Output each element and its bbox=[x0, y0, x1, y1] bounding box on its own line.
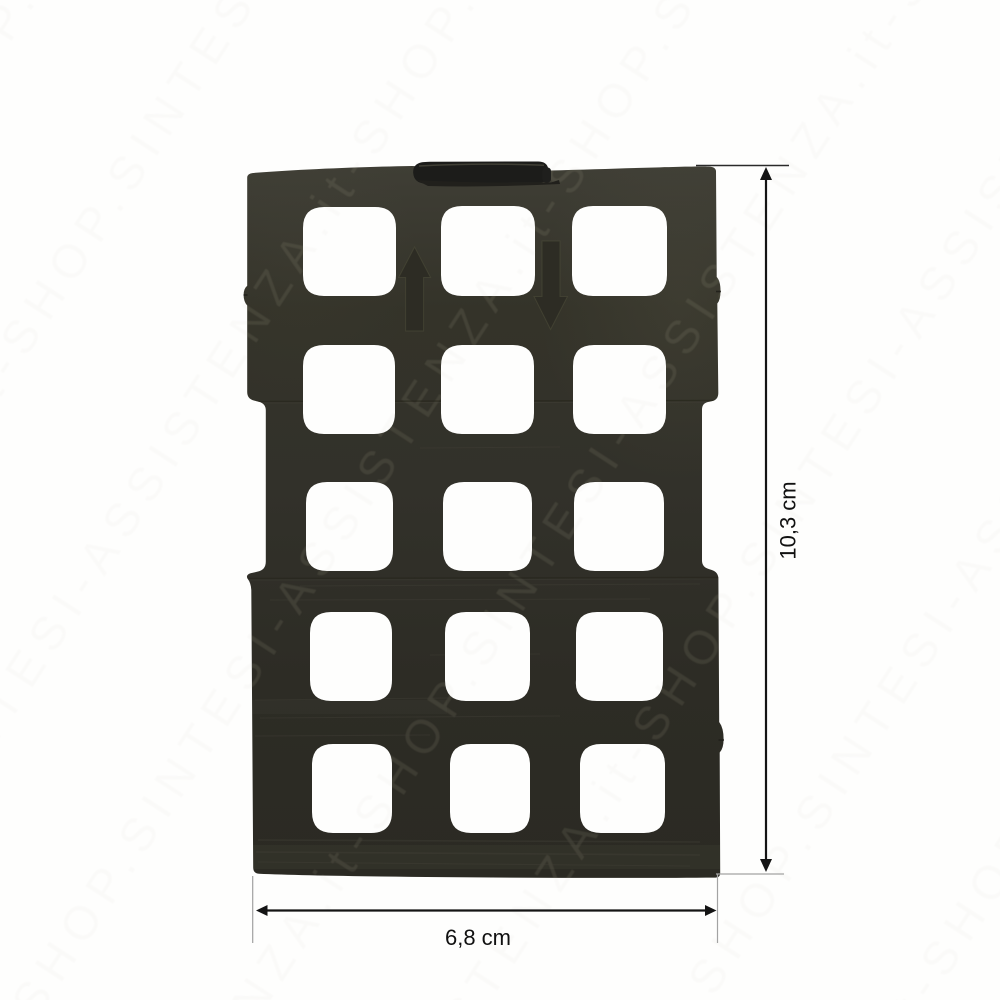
svg-text:6,8 cm: 6,8 cm bbox=[445, 925, 511, 950]
svg-text:10,3 cm: 10,3 cm bbox=[776, 481, 801, 559]
